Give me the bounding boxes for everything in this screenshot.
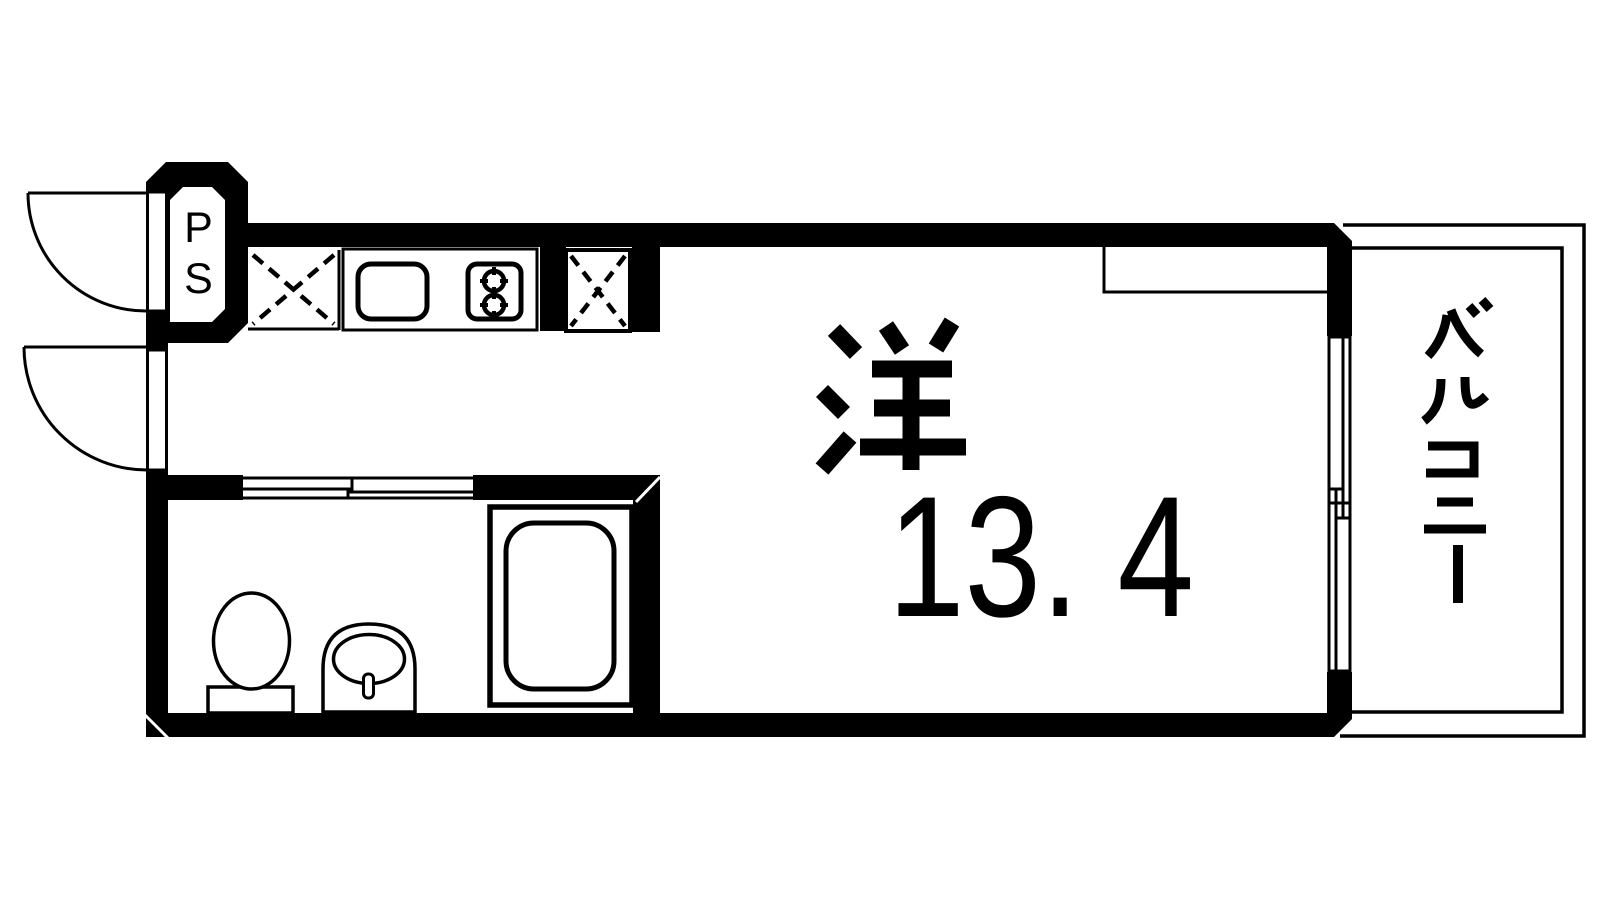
kitchen-sink: [358, 264, 427, 319]
bathtub: [490, 507, 632, 705]
floorplan-canvas: 13. 4 PS: [0, 0, 1600, 900]
labels: 13. 4: [822, 300, 1490, 653]
bath-top-wall-right: [473, 475, 660, 500]
entrance-door-leaf: [148, 192, 167, 311]
balcony-outer-rail: [1340, 225, 1584, 736]
kitchen: [248, 249, 630, 331]
second-door-leaf: [148, 350, 167, 470]
balcony-label: [1424, 300, 1490, 603]
storage-space: [566, 250, 630, 331]
basin-faucet-icon: [364, 674, 374, 698]
toilet-tank: [208, 687, 293, 713]
kitchen-wall-chunk: [540, 223, 566, 331]
entrance-door: [28, 192, 167, 311]
balcony: [1340, 225, 1584, 736]
kitchen-counter: [343, 249, 537, 330]
toilet: [208, 593, 293, 713]
room-area-value: 13. 4: [888, 461, 1194, 653]
left-wall-lower: [146, 470, 168, 737]
second-door-swing-arc: [24, 347, 147, 470]
bath-top-wall-left: [146, 475, 243, 500]
left-wall-mid: [146, 311, 168, 352]
entrance-door-swing-arc: [28, 193, 146, 311]
refrigerator-space: [248, 250, 339, 330]
floorplan-drawing: 13. 4: [0, 0, 1600, 900]
closet-counter: [1104, 247, 1327, 292]
unit-bath: [208, 507, 632, 713]
wash-basin: [323, 624, 415, 712]
sliding-door: [243, 478, 473, 498]
kitchen-wall-stub: [632, 223, 660, 332]
second-swing-door: [24, 347, 167, 470]
sliding-window: [1329, 337, 1350, 671]
doors: [24, 192, 167, 470]
pipe-space-label: PS: [167, 188, 229, 322]
room-label-kanji: [822, 322, 966, 470]
bath-right-wall: [633, 475, 660, 715]
toilet-bowl: [214, 593, 290, 689]
